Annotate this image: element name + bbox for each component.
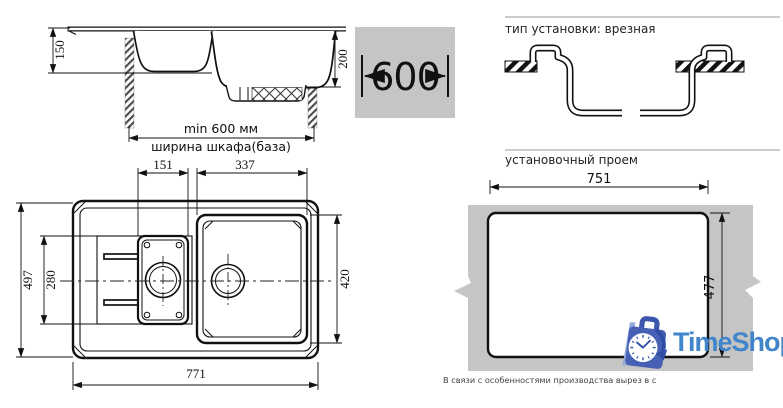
logo-clock xyxy=(629,333,658,362)
dim-200-value: 200 xyxy=(335,49,350,69)
dim-771-value: 771 xyxy=(186,366,206,381)
timeshop-logo-icon xyxy=(615,310,671,374)
dim-751-value: 751 xyxy=(587,172,612,187)
timeshop-logo-text: TimeShop xyxy=(673,327,783,358)
cabinet-width-badge-graphic: 600 xyxy=(355,27,455,118)
cabinet-width-label: ширина шкафа(база) xyxy=(151,139,291,154)
cabinet-wall-hatch-left xyxy=(125,38,134,128)
dim-751: 751 xyxy=(490,172,708,194)
dim-min600-value: min 600 мм xyxy=(184,121,258,136)
small-bowl-profile xyxy=(136,31,211,69)
dim-151-value: 151 xyxy=(153,157,173,172)
cabinet-width-badge: 600 xyxy=(355,27,455,118)
dim-771: 771 xyxy=(73,362,318,390)
dim-150-value: 150 xyxy=(52,40,67,60)
inset-sink-profile xyxy=(533,48,729,113)
countertop-hatch-left xyxy=(505,61,537,72)
installation-type-title: тип установки: врезная xyxy=(505,22,656,36)
sink-spec-sheet: 150 200 min 600 мм ширина шкафа(база) 60… xyxy=(0,0,783,408)
installation-type-drawing: тип установки: врезная xyxy=(490,8,783,150)
bowl-base-crosshatch xyxy=(252,88,302,101)
plan-view-drawing: 151 337 497 280 420 771 xyxy=(0,155,400,408)
badge-width-value: 600 xyxy=(370,55,440,99)
dim-477-value: 477 xyxy=(703,275,718,300)
cutout-title: установочный проем xyxy=(505,153,638,167)
countertop-hatch-right xyxy=(676,61,744,72)
large-bowl-plan xyxy=(197,215,307,343)
timeshop-logo: TimeShop xyxy=(615,310,783,374)
dim-min600: min 600 мм ширина шкафа(база) xyxy=(129,121,314,154)
dim-280-value: 280 xyxy=(43,270,58,290)
dim-337-value: 337 xyxy=(235,157,255,172)
production-footnote: В связи с особенностями производства выр… xyxy=(443,375,656,385)
dim-420-value: 420 xyxy=(337,269,352,289)
dim-497-value: 497 xyxy=(20,270,35,290)
side-view-drawing: 150 200 min 600 мм ширина шкафа(база) xyxy=(0,0,360,156)
